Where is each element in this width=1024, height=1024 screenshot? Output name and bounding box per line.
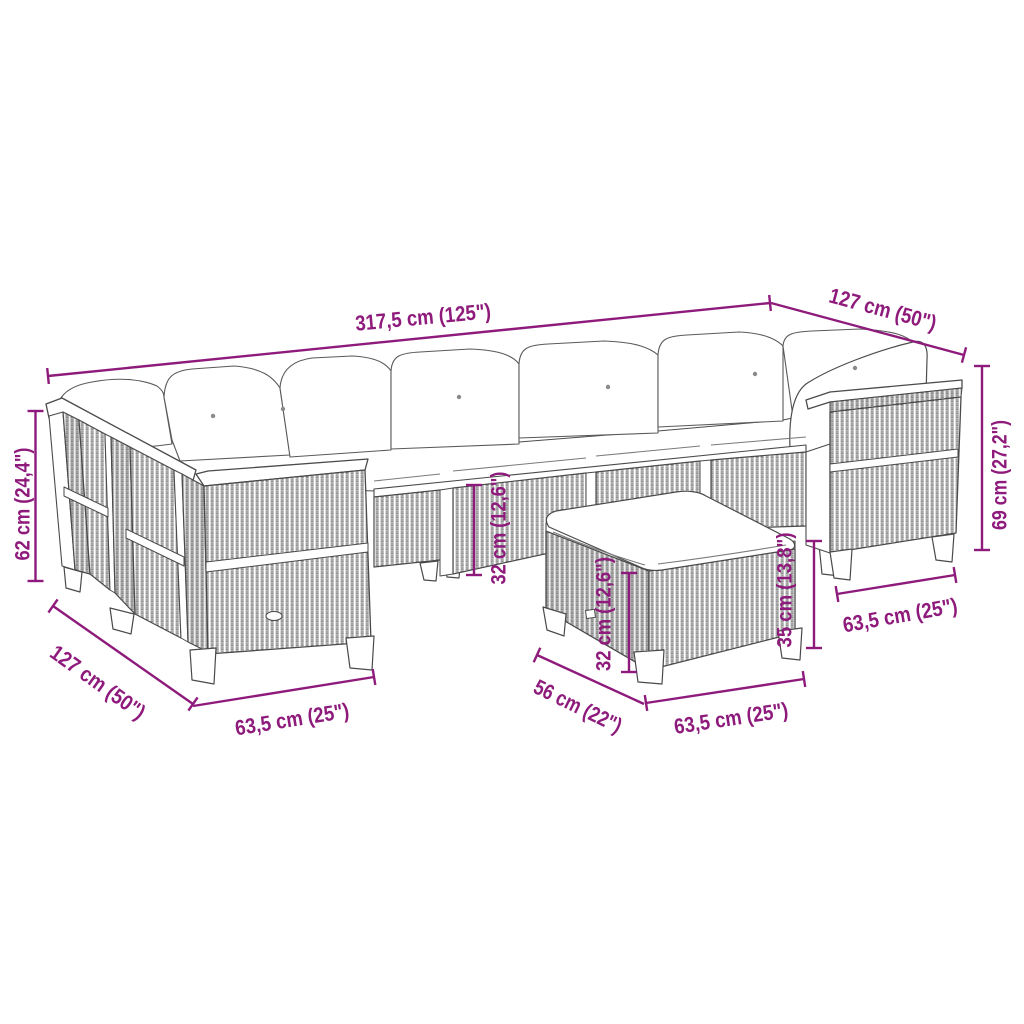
- svg-text:63,5 cm (25"): 63,5 cm (25"): [672, 698, 789, 739]
- svg-text:62 cm (24,4"): 62 cm (24,4"): [11, 448, 35, 561]
- svg-text:317,5 cm (125"): 317,5 cm (125"): [354, 299, 492, 335]
- svg-text:127 cm (50"): 127 cm (50"): [46, 640, 150, 724]
- svg-text:63,5 cm (25"): 63,5 cm (25"): [841, 594, 959, 638]
- svg-text:69 cm (27,2"): 69 cm (27,2"): [988, 420, 1012, 530]
- svg-text:32 cm (12,6"): 32 cm (12,6"): [487, 472, 511, 585]
- svg-text:56 cm (22"): 56 cm (22"): [530, 675, 626, 738]
- svg-text:63,5 cm (25"): 63,5 cm (25"): [233, 699, 350, 741]
- svg-text:35 cm (13,8"): 35 cm (13,8"): [773, 533, 797, 648]
- svg-text:127 cm (50"): 127 cm (50"): [827, 284, 939, 336]
- svg-text:32 cm (12,6"): 32 cm (12,6"): [592, 557, 616, 671]
